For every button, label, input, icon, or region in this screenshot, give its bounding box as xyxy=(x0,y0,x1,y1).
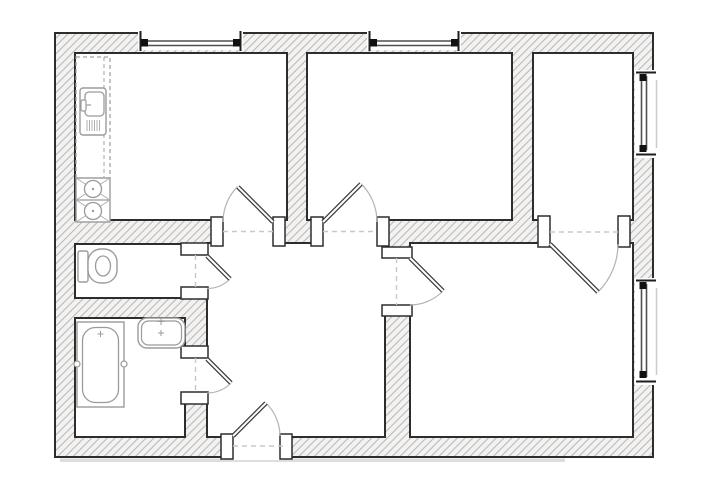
door-opening-entrance xyxy=(233,434,280,460)
door-opening-bottom-right xyxy=(382,258,413,305)
window-cap xyxy=(451,39,458,47)
door-frame xyxy=(618,216,630,247)
door-frame xyxy=(181,287,208,299)
window-cap xyxy=(640,371,647,378)
window-cap xyxy=(640,282,647,289)
door-frame xyxy=(181,392,208,404)
door-frame xyxy=(181,346,208,358)
bathtub-handle xyxy=(121,361,127,367)
floor-plan xyxy=(0,0,708,487)
door-frame xyxy=(382,305,412,316)
plan-layers xyxy=(55,31,657,462)
bathtub-handle xyxy=(74,361,80,367)
window-cap xyxy=(141,39,148,47)
door-frame xyxy=(211,217,223,246)
door-frame xyxy=(377,217,389,246)
toilet-bowl xyxy=(88,249,117,283)
door-opening-living xyxy=(223,216,273,247)
door-opening-right-room xyxy=(550,215,618,247)
floor-plan-canvas xyxy=(0,0,708,487)
stove-burner-dot xyxy=(92,188,94,190)
window-opening-4 xyxy=(635,278,654,385)
room-top-middle xyxy=(307,53,512,220)
window-cap xyxy=(640,145,647,152)
bottom-shadow xyxy=(60,459,565,463)
room-top-right xyxy=(533,53,633,220)
stove-burner-dot xyxy=(92,210,94,212)
kitchen-faucet xyxy=(81,100,86,111)
room-hallway xyxy=(207,243,385,437)
toilet-tank xyxy=(78,251,88,282)
window-cap xyxy=(640,74,647,81)
door-frame xyxy=(181,243,208,255)
door-frame xyxy=(221,434,233,459)
window-opening-3 xyxy=(635,70,654,158)
window-cap xyxy=(233,39,240,47)
door-frame xyxy=(311,217,323,246)
window-cap xyxy=(370,39,377,47)
door-frame xyxy=(382,247,412,258)
door-frame xyxy=(538,216,550,247)
door-frame xyxy=(273,217,285,246)
room-bottom-right xyxy=(410,243,633,437)
